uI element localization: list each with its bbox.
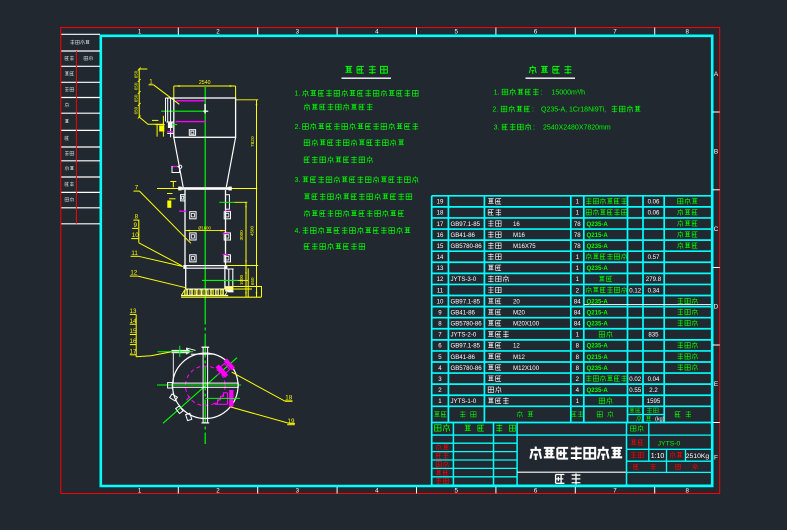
svg-text:0.06: 0.06 — [648, 210, 660, 217]
svg-text:78: 78 — [574, 243, 581, 250]
svg-text:10: 10 — [437, 298, 444, 305]
svg-text:M20X100: M20X100 — [513, 321, 540, 328]
svg-text:2: 2 — [216, 29, 220, 36]
svg-text:7: 7 — [613, 488, 617, 495]
svg-text:JYTS-3-0: JYTS-3-0 — [451, 276, 477, 283]
svg-text:0.06: 0.06 — [648, 199, 660, 206]
svg-text:Q235-A: Q235-A — [587, 387, 609, 394]
svg-text:JYTS-1-0: JYTS-1-0 — [451, 398, 477, 405]
svg-text:835: 835 — [648, 332, 659, 339]
svg-text:84: 84 — [574, 309, 581, 316]
svg-text:2540: 2540 — [199, 80, 211, 86]
svg-text:D: D — [714, 304, 719, 311]
svg-text:650: 650 — [133, 70, 138, 78]
svg-text:B: B — [714, 149, 718, 156]
svg-text:3: 3 — [296, 488, 300, 495]
svg-text:650: 650 — [133, 82, 138, 90]
svg-text:3000: 3000 — [239, 230, 244, 241]
svg-text:C: C — [714, 226, 719, 233]
svg-text:GB41-86: GB41-86 — [451, 354, 476, 361]
svg-text:JYTS-2-0: JYTS-2-0 — [451, 332, 477, 339]
svg-text:1: 1 — [138, 29, 142, 36]
svg-text::: : — [541, 90, 543, 97]
svg-text:15: 15 — [437, 243, 444, 250]
svg-text:7820: 7820 — [250, 136, 256, 147]
svg-text:8: 8 — [685, 29, 689, 36]
svg-text:2.: 2. — [295, 124, 301, 131]
svg-text:8: 8 — [135, 214, 139, 221]
svg-text:4500: 4500 — [250, 225, 255, 236]
svg-text:5: 5 — [454, 488, 458, 495]
svg-text:3.: 3. — [494, 125, 500, 132]
svg-text:0.04: 0.04 — [648, 376, 660, 383]
svg-text:84: 84 — [574, 298, 581, 305]
svg-text:Q235-A, 1Cr18Ni9Ti,: Q235-A, 1Cr18Ni9Ti, — [541, 107, 606, 114]
svg-text:Q235-A: Q235-A — [587, 321, 609, 328]
svg-text:GB5780-86: GB5780-86 — [451, 321, 483, 328]
svg-text:8: 8 — [685, 488, 689, 495]
svg-text:GB97.1-85: GB97.1-85 — [451, 298, 481, 305]
svg-text:F: F — [714, 455, 718, 462]
svg-text:4: 4 — [375, 29, 379, 36]
svg-text::: : — [532, 107, 534, 114]
svg-text:84: 84 — [574, 321, 581, 328]
svg-text:16: 16 — [437, 232, 444, 239]
svg-text:Q235-A: Q235-A — [587, 298, 609, 305]
svg-text:78: 78 — [574, 221, 581, 228]
svg-text:12: 12 — [130, 270, 137, 277]
svg-text:0.57: 0.57 — [648, 254, 660, 261]
svg-text:19: 19 — [437, 199, 444, 206]
svg-text:Q235-A: Q235-A — [587, 343, 609, 350]
svg-text:11: 11 — [131, 250, 138, 257]
svg-text:1.: 1. — [494, 90, 500, 97]
svg-text:2.: 2. — [492, 107, 498, 114]
svg-text:19: 19 — [288, 418, 295, 425]
svg-text:Q235-A: Q235-A — [587, 221, 609, 228]
svg-text:2: 2 — [216, 488, 220, 495]
svg-text:Q215-A: Q215-A — [587, 354, 609, 361]
svg-text:A: A — [714, 71, 719, 78]
svg-text:15000m³/h: 15000m³/h — [552, 90, 586, 97]
svg-text:JYTS-0: JYTS-0 — [658, 441, 681, 448]
svg-text:1: 1 — [138, 488, 142, 495]
svg-text:1595: 1595 — [647, 398, 661, 405]
svg-text:3.: 3. — [295, 177, 301, 184]
svg-text:(kg): (kg) — [655, 417, 665, 423]
svg-text:650: 650 — [250, 277, 255, 285]
svg-text:6: 6 — [534, 488, 538, 495]
svg-text:4: 4 — [375, 488, 379, 495]
svg-text:7: 7 — [135, 185, 139, 192]
svg-text:20: 20 — [513, 298, 520, 305]
svg-text:2540X2480X7820mm: 2540X2480X7820mm — [543, 125, 611, 132]
svg-text:6: 6 — [534, 29, 538, 36]
svg-text:Q215-A: Q215-A — [587, 309, 609, 316]
svg-text:12: 12 — [513, 343, 520, 350]
svg-text:GB97.1-85: GB97.1-85 — [451, 221, 481, 228]
svg-text:1:10: 1:10 — [651, 453, 665, 460]
svg-text:18: 18 — [437, 210, 444, 217]
svg-text:1.: 1. — [295, 91, 301, 98]
svg-text:13: 13 — [437, 265, 444, 272]
svg-text:9: 9 — [133, 222, 137, 229]
svg-text:650: 650 — [133, 106, 138, 114]
svg-text:17: 17 — [437, 221, 444, 228]
svg-text:7: 7 — [613, 29, 617, 36]
svg-text:Q235-A: Q235-A — [587, 265, 609, 272]
svg-text:5: 5 — [454, 29, 458, 36]
svg-text:18: 18 — [285, 395, 292, 402]
svg-text:GB5780-86: GB5780-86 — [451, 243, 483, 250]
svg-text:1000: 1000 — [239, 274, 244, 285]
svg-text:Ø1600: Ø1600 — [198, 225, 211, 230]
svg-text:0.02: 0.02 — [629, 376, 641, 383]
svg-text:M12X100: M12X100 — [513, 365, 540, 372]
svg-text:2510Kg: 2510Kg — [686, 453, 710, 460]
svg-text:10: 10 — [132, 232, 139, 239]
svg-text:GB41-86: GB41-86 — [451, 232, 476, 239]
svg-text:279.8: 279.8 — [646, 276, 662, 283]
svg-text:2.2: 2.2 — [649, 387, 658, 394]
svg-text:Q235-A: Q235-A — [587, 365, 609, 372]
svg-text:650: 650 — [133, 94, 138, 102]
svg-text:E: E — [714, 381, 719, 388]
svg-text:0.34: 0.34 — [648, 287, 660, 294]
svg-text:78: 78 — [574, 232, 581, 239]
svg-text:16: 16 — [513, 221, 520, 228]
svg-text::: : — [533, 125, 535, 132]
svg-text:GB5780-86: GB5780-86 — [451, 365, 483, 372]
svg-text:M20: M20 — [513, 309, 525, 316]
svg-text:Q215-A: Q215-A — [587, 232, 609, 239]
svg-text:14: 14 — [437, 254, 444, 261]
svg-text:0.12: 0.12 — [629, 287, 641, 294]
svg-text:12: 12 — [437, 276, 444, 283]
svg-text:M12: M12 — [513, 354, 525, 361]
svg-text:4.: 4. — [295, 228, 301, 235]
svg-text:M16X75: M16X75 — [513, 243, 536, 250]
svg-text:0.55: 0.55 — [629, 387, 641, 394]
svg-text:11: 11 — [437, 287, 444, 294]
svg-text:Q235-A: Q235-A — [587, 243, 609, 250]
svg-text:M16: M16 — [513, 232, 525, 239]
svg-text:GB41-86: GB41-86 — [451, 309, 476, 316]
svg-text:3: 3 — [296, 29, 300, 36]
svg-text:GB97.1-85: GB97.1-85 — [451, 343, 481, 350]
